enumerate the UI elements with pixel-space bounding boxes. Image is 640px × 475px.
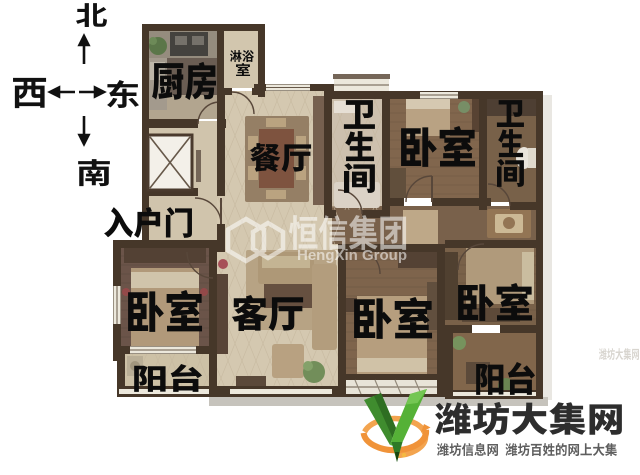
svg-text:HengXin Group: HengXin Group [297, 247, 407, 264]
